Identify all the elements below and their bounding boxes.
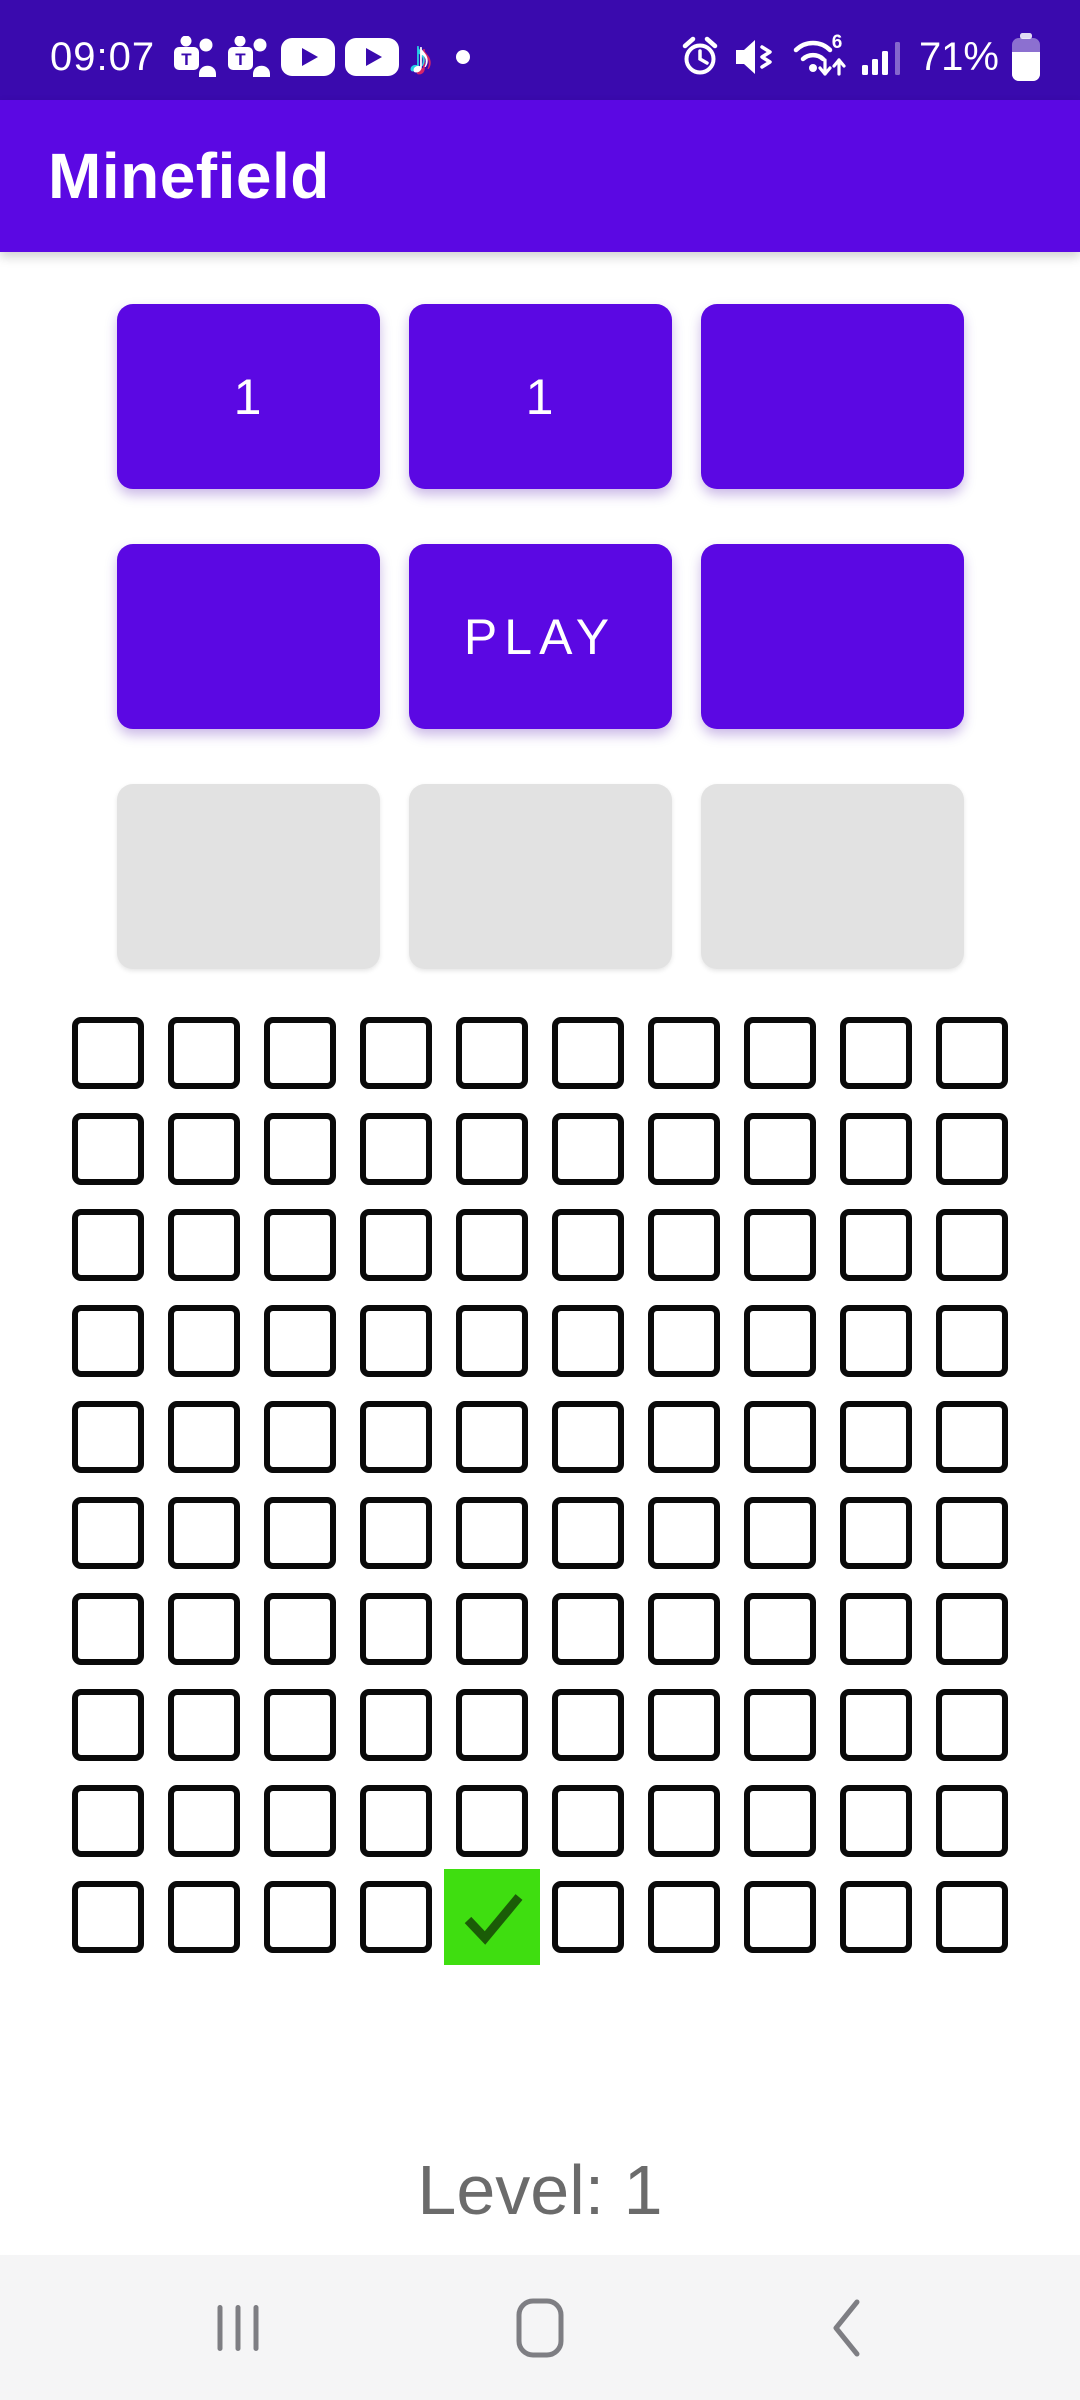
checkbox-box [552,1017,624,1089]
youtube-icon [345,37,399,77]
checkbox-box [936,1113,1008,1185]
mine-checkbox-r6-c2[interactable] [156,1485,252,1581]
mine-checkbox-r5-c1[interactable] [60,1389,156,1485]
checkbox-box [648,1209,720,1281]
disabled-button-1 [117,784,380,969]
checkbox-box [648,1305,720,1377]
mine-checkbox-r8-c1[interactable] [60,1677,156,1773]
mine-checkbox-r4-c2[interactable] [156,1293,252,1389]
play-button[interactable]: PLAY [409,544,672,729]
checkbox-box [840,1401,912,1473]
checkbox-box [264,1881,336,1953]
checkbox-box [936,1305,1008,1377]
checkbox-box [168,1305,240,1377]
mine-grid [60,1005,1020,1965]
checkbox-box [360,1209,432,1281]
count-button-1[interactable]: 1 [117,304,380,489]
mine-checkbox-r9-c7[interactable] [636,1773,732,1869]
checkbox-box [648,1593,720,1665]
teams-icon: T [173,36,217,78]
checkbox-box [168,1785,240,1857]
checkbox-box [264,1593,336,1665]
checkbox-box [360,1113,432,1185]
control-button-grid: 1 1 PLAY [0,304,1080,969]
mine-checkbox-r5-c5[interactable] [444,1389,540,1485]
mine-checkbox-r6-c6[interactable] [540,1485,636,1581]
mine-checkbox-r3-c6[interactable] [540,1197,636,1293]
mine-checkbox-r8-c10[interactable] [924,1677,1020,1773]
checkbox-box [72,1209,144,1281]
checkbox-box [840,1017,912,1089]
checkbox-box [936,1593,1008,1665]
mine-checkbox-r8-c2[interactable] [156,1677,252,1773]
mine-checkbox-r1-c10[interactable] [924,1005,1020,1101]
level-label: Level: 1 [0,2150,1080,2230]
checkbox-box [744,1785,816,1857]
mine-checkbox-r5-c10[interactable] [924,1389,1020,1485]
mine-checkbox-r1-c2[interactable] [156,1005,252,1101]
mine-checkbox-r3-c9[interactable] [828,1197,924,1293]
checkbox-box [552,1497,624,1569]
mine-checkbox-r4-c5[interactable] [444,1293,540,1389]
checkbox-box [744,1401,816,1473]
mine-checkbox-r2-c8[interactable] [732,1101,828,1197]
mine-checkbox-r7-c1[interactable] [60,1581,156,1677]
mine-checkbox-r3-c1[interactable] [60,1197,156,1293]
mine-checkbox-r9-c5[interactable] [444,1773,540,1869]
mine-checkbox-r9-c1[interactable] [60,1773,156,1869]
checkbox-box [456,1593,528,1665]
checkbox-box [648,1497,720,1569]
blank-button-2[interactable] [117,544,380,729]
mine-checkbox-r6-c9[interactable] [828,1485,924,1581]
checkbox-box [456,1497,528,1569]
checkbox-box [648,1881,720,1953]
checkbox-box [264,1785,336,1857]
checkbox-box [72,1881,144,1953]
checkbox-box [72,1113,144,1185]
checkbox-box [936,1401,1008,1473]
checkbox-box [552,1401,624,1473]
checkbox-box [744,1113,816,1185]
checkbox-box [72,1785,144,1857]
mine-checkbox-r2-c10[interactable] [924,1101,1020,1197]
checkbox-box [456,1689,528,1761]
blank-button-3[interactable] [701,544,964,729]
checkbox-box [360,1593,432,1665]
checkbox-box [744,1593,816,1665]
checkbox-box [264,1305,336,1377]
checkbox-box [744,1305,816,1377]
checkbox-box [168,1017,240,1089]
svg-text:T: T [235,50,246,69]
mine-checkbox-r9-c9[interactable] [828,1773,924,1869]
mine-checkbox-r2-c5[interactable] [444,1101,540,1197]
mine-checkbox-r5-c7[interactable] [636,1389,732,1485]
checkbox-box [840,1497,912,1569]
mine-checkbox-r3-c8[interactable] [732,1197,828,1293]
mine-checkbox-r9-c3[interactable] [252,1773,348,1869]
mine-checkbox-r10-c6[interactable] [540,1869,636,1965]
status-bar: 09:07 T T [0,0,1080,100]
checkbox-box [72,1401,144,1473]
checkbox-box [840,1689,912,1761]
mine-checkbox-r4-c4[interactable] [348,1293,444,1389]
checkbox-box [72,1305,144,1377]
mine-checkbox-r5-c8[interactable] [732,1389,828,1485]
checkbox-box [744,1881,816,1953]
mine-checkbox-r1-c4[interactable] [348,1005,444,1101]
checkbox-box [936,1689,1008,1761]
checkbox-box [168,1881,240,1953]
checkbox-box [360,1017,432,1089]
mine-checkbox-r10-c10[interactable] [924,1869,1020,1965]
mine-checkbox-r4-c10[interactable] [924,1293,1020,1389]
mine-checkbox-r8-c5[interactable] [444,1677,540,1773]
mine-checkbox-r2-c4[interactable] [348,1101,444,1197]
checkbox-box [552,1209,624,1281]
mine-checkbox-r7-c8[interactable] [732,1581,828,1677]
mine-checkbox-r9-c8[interactable] [732,1773,828,1869]
checkbox-box [168,1209,240,1281]
mine-checkbox-r4-c3[interactable] [252,1293,348,1389]
checkbox-box [840,1785,912,1857]
mine-checkbox-r5-c2[interactable] [156,1389,252,1485]
mine-checkbox-r7-c9[interactable] [828,1581,924,1677]
mine-checkbox-r9-c4[interactable] [348,1773,444,1869]
mine-checkbox-r1-c8[interactable] [732,1005,828,1101]
mine-checkbox-r8-c7[interactable] [636,1677,732,1773]
checkbox-box [456,1305,528,1377]
mine-checkbox-r7-c3[interactable] [252,1581,348,1677]
battery-percent: 71% [919,35,999,80]
mine-checkbox-r4-c6[interactable] [540,1293,636,1389]
checkbox-box [648,1689,720,1761]
mine-checkbox-r6-c7[interactable] [636,1485,732,1581]
checkbox-box [168,1689,240,1761]
mine-checkbox-r3-c2[interactable] [156,1197,252,1293]
mine-checkbox-r1-c3[interactable] [252,1005,348,1101]
mine-checkbox-r1-c7[interactable] [636,1005,732,1101]
checkbox-box [840,1209,912,1281]
checkbox-box [264,1497,336,1569]
checkmark-icon [444,1869,540,1965]
mine-checkbox-r7-c7[interactable] [636,1581,732,1677]
checkbox-box [72,1017,144,1089]
mine-checkbox-r2-c2[interactable] [156,1101,252,1197]
mine-checkbox-r5-c6[interactable] [540,1389,636,1485]
volume-muted-icon [734,36,778,78]
disabled-button-2 [409,784,672,969]
checkbox-box [360,1401,432,1473]
checkbox-box [168,1401,240,1473]
mine-checkbox-r7-c10[interactable] [924,1581,1020,1677]
checkbox-box [264,1209,336,1281]
checkbox-box [552,1689,624,1761]
blank-button-1[interactable] [701,304,964,489]
mine-checkbox-r8-c4[interactable] [348,1677,444,1773]
mine-checkbox-r7-c4[interactable] [348,1581,444,1677]
wifi6-icon: 6 [791,33,847,81]
tiktok-icon: ♪ [409,34,432,80]
mine-checkbox-r10-c7[interactable] [636,1869,732,1965]
checkbox-box [360,1497,432,1569]
mine-checkbox-r1-c5[interactable] [444,1005,540,1101]
checkbox-box [360,1689,432,1761]
mine-checkbox-r4-c1[interactable] [60,1293,156,1389]
mine-checkbox-r5-c3[interactable] [252,1389,348,1485]
checkbox-box [264,1017,336,1089]
youtube-icon [281,37,335,77]
checkbox-box [648,1785,720,1857]
mine-checkbox-r9-c10[interactable] [924,1773,1020,1869]
mine-checkbox-r9-c6[interactable] [540,1773,636,1869]
mine-checkbox-r4-c7[interactable] [636,1293,732,1389]
svg-text:6: 6 [832,33,843,53]
mine-checkbox-r1-c9[interactable] [828,1005,924,1101]
mine-checkbox-r8-c6[interactable] [540,1677,636,1773]
mine-checkbox-r2-c6[interactable] [540,1101,636,1197]
mine-checkbox-r4-c8[interactable] [732,1293,828,1389]
mine-checkbox-r7-c2[interactable] [156,1581,252,1677]
checkbox-box [840,1881,912,1953]
mine-checkbox-r10-c9[interactable] [828,1869,924,1965]
checkbox-box [72,1689,144,1761]
checkbox-box [360,1305,432,1377]
checkbox-box [744,1017,816,1089]
checkbox-box [264,1689,336,1761]
teams-icon: T [227,36,271,78]
mine-checkbox-r9-c2[interactable] [156,1773,252,1869]
mine-checkbox-r10-c3[interactable] [252,1869,348,1965]
svg-text:T: T [181,50,192,69]
mine-checkbox-r10-c5[interactable] [444,1869,540,1965]
checkbox-box [840,1593,912,1665]
count-button-2[interactable]: 1 [409,304,672,489]
mine-checkbox-r6-c1[interactable] [60,1485,156,1581]
mine-checkbox-r1-c1[interactable] [60,1005,156,1101]
mine-checkbox-r7-c5[interactable] [444,1581,540,1677]
checkbox-box [744,1209,816,1281]
mine-checkbox-r6-c3[interactable] [252,1485,348,1581]
mine-checkbox-r2-c9[interactable] [828,1101,924,1197]
checkbox-box [168,1593,240,1665]
checkbox-box [264,1401,336,1473]
checkbox-box [936,1209,1008,1281]
checkbox-box [936,1497,1008,1569]
disabled-button-3 [701,784,964,969]
checkbox-box [72,1593,144,1665]
checkbox-box [552,1305,624,1377]
mine-checkbox-r3-c5[interactable] [444,1197,540,1293]
checkbox-box [72,1497,144,1569]
checkbox-box [360,1785,432,1857]
checkbox-box [360,1881,432,1953]
mine-checkbox-r1-c6[interactable] [540,1005,636,1101]
checkbox-box [840,1305,912,1377]
mine-checkbox-r10-c2[interactable] [156,1869,252,1965]
checkbox-box [552,1593,624,1665]
mine-checkbox-r4-c9[interactable] [828,1293,924,1389]
mine-checkbox-r3-c3[interactable] [252,1197,348,1293]
mine-checkbox-r2-c7[interactable] [636,1101,732,1197]
mine-checkbox-r5-c9[interactable] [828,1389,924,1485]
notification-dot [456,50,470,64]
battery-icon [1012,33,1040,81]
navigation-bar [0,2255,1080,2400]
mine-checkbox-r2-c3[interactable] [252,1101,348,1197]
checkbox-box [456,1209,528,1281]
checkbox-box [552,1881,624,1953]
signal-strength-icon [860,36,906,78]
checkbox-box [936,1017,1008,1089]
recents-icon[interactable] [218,2305,259,2351]
alarm-icon [679,36,721,78]
checkbox-box [456,1017,528,1089]
mine-checkbox-r7-c6[interactable] [540,1581,636,1677]
mine-checkbox-r10-c8[interactable] [732,1869,828,1965]
checkbox-box [456,1113,528,1185]
mine-checkbox-r6-c10[interactable] [924,1485,1020,1581]
checkbox-box [552,1785,624,1857]
mine-checkbox-r10-c4[interactable] [348,1869,444,1965]
page-title: Minefield [48,139,330,213]
checkbox-box [936,1881,1008,1953]
mine-checkbox-r6-c5[interactable] [444,1485,540,1581]
checkbox-box [168,1497,240,1569]
checkbox-box [840,1113,912,1185]
app-bar: Minefield [0,100,1080,252]
mine-checkbox-r5-c4[interactable] [348,1389,444,1485]
checkbox-box [264,1113,336,1185]
checkbox-box [552,1113,624,1185]
checkbox-box [648,1017,720,1089]
mine-checkbox-r3-c7[interactable] [636,1197,732,1293]
checkbox-box [744,1689,816,1761]
checkbox-box [456,1401,528,1473]
mine-checkbox-r2-c1[interactable] [60,1101,156,1197]
checkbox-box [648,1401,720,1473]
checkbox-box [648,1113,720,1185]
home-icon[interactable] [515,2298,565,2358]
checkbox-box [936,1785,1008,1857]
mine-checkbox-r3-c10[interactable] [924,1197,1020,1293]
mine-checkbox-r10-c1[interactable] [60,1869,156,1965]
mine-checkbox-r8-c9[interactable] [828,1677,924,1773]
mine-checkbox-r6-c4[interactable] [348,1485,444,1581]
checkbox-box [744,1497,816,1569]
mine-checkbox-r8-c8[interactable] [732,1677,828,1773]
mine-checkbox-r6-c8[interactable] [732,1485,828,1581]
back-icon[interactable] [830,2297,862,2359]
mine-checkbox-r8-c3[interactable] [252,1677,348,1773]
checkbox-box [168,1113,240,1185]
checkbox-box [456,1785,528,1857]
clock-time: 09:07 [50,35,155,80]
mine-checkbox-r3-c4[interactable] [348,1197,444,1293]
